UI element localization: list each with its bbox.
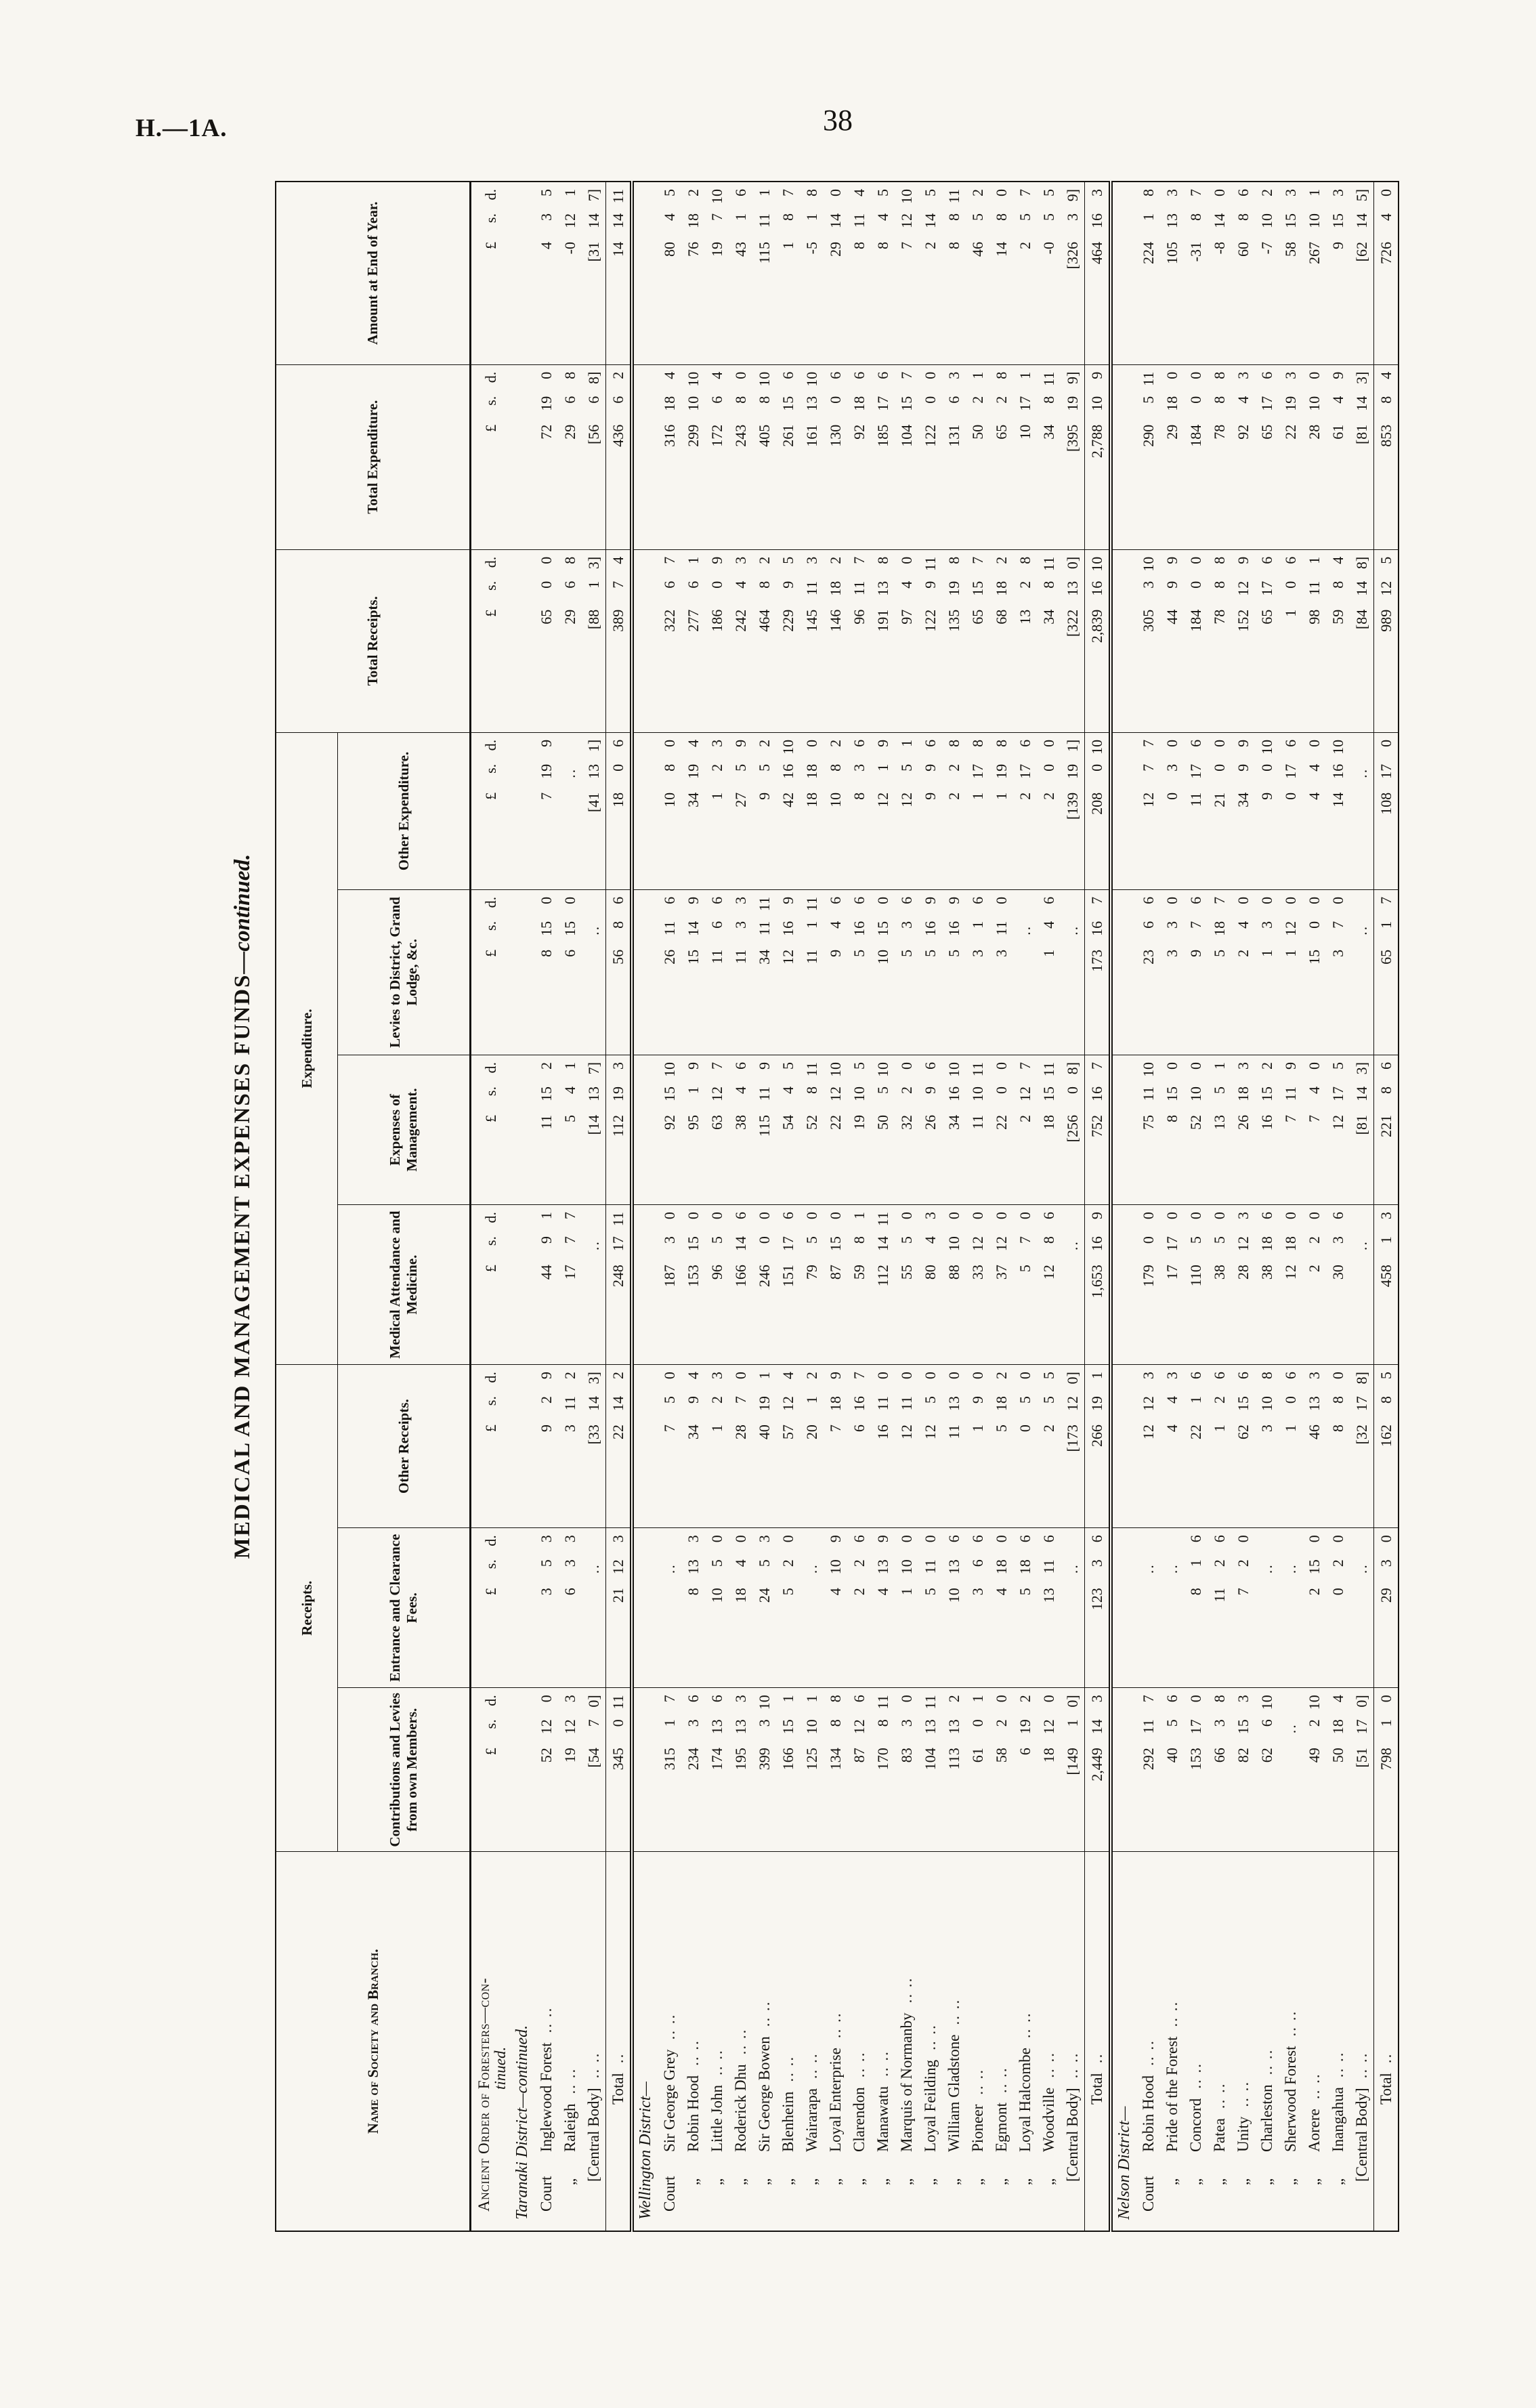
money-cell: 123 bbox=[705, 732, 729, 889]
money-cell: 57124 bbox=[776, 1365, 800, 1528]
empty-cell bbox=[1111, 182, 1136, 364]
money-cell: 12200 bbox=[918, 364, 942, 549]
money-cell: [25608] bbox=[1061, 1055, 1085, 1205]
money-cell: 19105 bbox=[847, 1055, 871, 1205]
branch-name-cell: Wellington District— bbox=[632, 1852, 658, 2231]
money-cell: £s.d. bbox=[471, 364, 511, 549]
money-cell: 10171 bbox=[1013, 364, 1037, 549]
money-cell: 1100 bbox=[895, 1528, 918, 1688]
money-cell: 9650 bbox=[705, 1205, 729, 1365]
money-cell: 72190 bbox=[534, 364, 558, 549]
branch-name-cell: „Pride of the Forest.. .. bbox=[1160, 1852, 1184, 2231]
money-cell: 104157 bbox=[895, 364, 918, 549]
money-cell: 2216 bbox=[1184, 1365, 1208, 1528]
money-cell: 19123 bbox=[558, 1688, 582, 1852]
empty-cell bbox=[632, 732, 658, 889]
money-cell: 1133 bbox=[729, 889, 752, 1055]
money-cell: 1840 bbox=[729, 1528, 752, 1688]
money-cell: 345011 bbox=[606, 1688, 633, 1852]
money-cell: 24600 bbox=[752, 1205, 776, 1365]
money-cell: [33143] bbox=[582, 1365, 606, 1528]
money-cell: 190 bbox=[966, 1365, 989, 1528]
table-row: „Loyal Feilding.. ..10413115110125080432… bbox=[918, 182, 942, 2231]
branch-name-cell: „William Gladstone.. .. bbox=[942, 1852, 966, 2231]
money-cell: 24380 bbox=[729, 364, 752, 549]
other-receipts-header: Other Receipts. bbox=[338, 1365, 471, 1528]
blank-value-cell: .. bbox=[1350, 732, 1374, 889]
money-cell: 9010 bbox=[1255, 732, 1279, 889]
table-row: „Raleigh.. ..19123633311217775416150..29… bbox=[558, 182, 582, 2231]
money-cell: 15149 bbox=[681, 889, 705, 1055]
money-cell: 020 bbox=[1326, 1528, 1350, 1688]
money-cell: [81143] bbox=[1350, 1055, 1374, 1205]
contributions-header: Contributions and Levies from own Member… bbox=[338, 1688, 471, 1852]
money-cell: 5445 bbox=[776, 1055, 800, 1205]
money-cell: 52120 bbox=[534, 1688, 558, 1852]
table-row: „Sherwood Forest.. ......106121807119112… bbox=[1279, 182, 1302, 2231]
money-cell: 13488 bbox=[824, 1688, 847, 1852]
money-cell: 82153 bbox=[1231, 1688, 1255, 1852]
table-title-main: MEDICAL AND MANAGEMENT EXPENSES FUNDS bbox=[230, 974, 255, 1559]
money-cell: 11130 bbox=[942, 1365, 966, 1528]
money-cell: 952 bbox=[752, 732, 776, 889]
empty-cell bbox=[1111, 1365, 1136, 1528]
money-cell: 8043 bbox=[918, 1205, 942, 1365]
money-cell: 9519 bbox=[681, 1055, 705, 1205]
total-row: Total..798102930162854581322186651710817… bbox=[1374, 182, 1399, 2231]
money-cell: 200 bbox=[1037, 732, 1061, 889]
money-cell: [41131] bbox=[582, 732, 606, 889]
money-cell: 5169 bbox=[942, 889, 966, 1055]
money-cell: 13006 bbox=[824, 364, 847, 549]
blank-value-cell: .. bbox=[800, 1528, 824, 1688]
money-cell: 38974 bbox=[606, 549, 633, 732]
branch-name-cell: [Central Body].. .. bbox=[1061, 1852, 1085, 2231]
money-cell: 46133 bbox=[1302, 1365, 1326, 1528]
total-receipts-header: Total Receipts. bbox=[276, 549, 471, 732]
money-cell: 1806 bbox=[606, 732, 633, 889]
money-cell: 1500 bbox=[1302, 889, 1326, 1055]
branch-name-cell: „Concord.. .. bbox=[1184, 1852, 1208, 2231]
money-cell: 32267 bbox=[658, 549, 681, 732]
table-row: CourtInglewood Forest.. ..52120353929449… bbox=[534, 182, 558, 2231]
money-cell: 720 bbox=[1231, 1528, 1255, 1688]
empty-cell bbox=[632, 182, 658, 364]
blank-value-cell: .. bbox=[1255, 1528, 1279, 1688]
money-cell: 3499 bbox=[1231, 732, 1255, 889]
money-cell: 135198 bbox=[942, 549, 966, 732]
money-cell: 2012 bbox=[800, 1365, 824, 1528]
blank-value-cell: .. bbox=[1061, 1205, 1085, 1365]
money-cell: 7888 bbox=[1208, 549, 1231, 732]
entrance-fees-header: Entrance and Clearance Fees. bbox=[338, 1528, 471, 1688]
empty-cell bbox=[511, 1688, 534, 1852]
money-cell: 929 bbox=[534, 1365, 558, 1528]
money-cell: [32639] bbox=[1061, 182, 1085, 364]
money-cell: 13163 bbox=[942, 364, 966, 549]
branch-name-cell: „Patea.. .. bbox=[1208, 1852, 1231, 2231]
money-cell: 12180 bbox=[1279, 1205, 1302, 1365]
money-cell: £s.d. bbox=[471, 1055, 511, 1205]
money-cell: 112193 bbox=[606, 1055, 633, 1205]
table-row: „Egmont.. ..5820418051823712022003110119… bbox=[989, 182, 1013, 2231]
money-cell: 24243 bbox=[729, 549, 752, 732]
money-cell: 12169 bbox=[776, 889, 800, 1055]
money-cell: 353 bbox=[534, 1528, 558, 1688]
blank-value-cell: .. bbox=[582, 1528, 606, 1688]
money-cell: 1080 bbox=[658, 732, 681, 889]
money-cell: 11152 bbox=[534, 1055, 558, 1205]
money-cell: 341610 bbox=[942, 1055, 966, 1205]
branch-name-cell: „Blenheim.. .. bbox=[776, 1852, 800, 2231]
table-row: CourtRobin Hood.. ..292117..121231790075… bbox=[1136, 182, 1160, 2231]
money-cell: 16152 bbox=[1255, 1055, 1279, 1205]
money-cell: 976 bbox=[1184, 889, 1208, 1055]
money-cell: 11050 bbox=[1184, 1205, 1208, 1365]
money-cell: 5820 bbox=[989, 1688, 1013, 1852]
money-cell: [395199] bbox=[1061, 364, 1085, 549]
money-cell: 8045 bbox=[658, 182, 681, 364]
money-cell: 10136 bbox=[942, 1528, 966, 1688]
money-cell: [31147] bbox=[582, 182, 606, 364]
money-cell: 17264 bbox=[705, 364, 729, 549]
money-cell: -7102 bbox=[1255, 182, 1279, 364]
money-cell: -055 bbox=[1037, 182, 1061, 364]
money-cell: 880 bbox=[1326, 1365, 1350, 1528]
empty-cell bbox=[511, 182, 534, 364]
table-row: „Patea.. ..66381126126385013515187210078… bbox=[1208, 182, 1231, 2231]
money-cell: [173120] bbox=[1061, 1365, 1085, 1528]
branch-name-cell: Total.. bbox=[1374, 1852, 1399, 2231]
money-cell: 3108 bbox=[1255, 1365, 1279, 1528]
medical-attendance-header: Medical Attendance and Medicine. bbox=[338, 1205, 471, 1365]
money-cell: 3850 bbox=[1208, 1205, 1231, 1365]
rotated-table-container: MEDICAL AND MANAGEMENT EXPENSES FUNDS—co… bbox=[230, 181, 1395, 2232]
table-row: „Sir George Bowen.. ..399310245340191246… bbox=[752, 182, 776, 2231]
expenditure-group-header: Expenditure. bbox=[276, 732, 338, 1364]
money-cell: 16285 bbox=[1374, 1365, 1399, 1528]
money-cell: 5686 bbox=[606, 889, 633, 1055]
empty-cell bbox=[632, 364, 658, 549]
money-cell: 2,788109 bbox=[1085, 364, 1111, 549]
money-cell: 8150 bbox=[1160, 1055, 1184, 1205]
table-row: [Central Body].. ..[14910]..[173120]..[2… bbox=[1061, 182, 1085, 2231]
money-cell: [14910] bbox=[1061, 1688, 1085, 1852]
money-cell: 443 bbox=[1160, 1365, 1184, 1528]
money-cell: 3036 bbox=[1326, 1205, 1350, 1365]
money-cell: 185176 bbox=[871, 364, 895, 549]
branch-name-cell: „Woodville.. .. bbox=[1037, 1852, 1061, 2231]
table-row: „Charleston.. ..62610..31083818616152130… bbox=[1255, 182, 1279, 2231]
branch-name-cell: „Inangahua.. .. bbox=[1326, 1852, 1350, 2231]
money-cell: 18120 bbox=[1037, 1688, 1061, 1852]
money-cell: 11111 bbox=[800, 889, 824, 1055]
money-cell: [62145] bbox=[1350, 182, 1374, 364]
table-row: „Loyal Halcombe.. ..619251860505702127..… bbox=[1013, 182, 1037, 2231]
money-cell: 4139 bbox=[871, 1528, 895, 1688]
money-cell: 8114 bbox=[847, 182, 871, 364]
management-expenses-header: Expenses of Management. bbox=[338, 1055, 471, 1205]
funds-table: Name of Society and Branch. Receipts. Ex… bbox=[275, 181, 1399, 2232]
money-cell: 152129 bbox=[1231, 549, 1255, 732]
receipts-group-header: Receipts. bbox=[276, 1365, 338, 1852]
branch-name-cell: CourtSir George Grey.. .. bbox=[658, 1852, 681, 2231]
money-cell: 10150 bbox=[871, 889, 895, 1055]
empty-cell bbox=[1111, 1528, 1136, 1688]
money-cell: 153170 bbox=[1184, 1688, 1208, 1852]
money-cell: 946 bbox=[824, 889, 847, 1055]
money-cell: 2930 bbox=[1374, 1528, 1399, 1688]
money-cell: 98111 bbox=[1302, 549, 1326, 732]
money-cell: [32178] bbox=[1350, 1365, 1374, 1528]
money-cell: 29180 bbox=[1160, 364, 1184, 549]
money-cell: 34811 bbox=[1037, 549, 1061, 732]
branch-name-cell: Total.. bbox=[606, 1852, 633, 2231]
empty-cell bbox=[632, 1055, 658, 1205]
branch-name-cell: „Wairarapa.. .. bbox=[800, 1852, 824, 2231]
money-cell: 6149 bbox=[1326, 364, 1350, 549]
blank-value-cell: .. bbox=[1013, 889, 1037, 1055]
money-cell: £s.d. bbox=[471, 732, 511, 889]
money-cell: 5550 bbox=[895, 1205, 918, 1365]
money-cell: 26116 bbox=[658, 889, 681, 1055]
money-cell: 130 bbox=[1255, 889, 1279, 1055]
money-cell: 836 bbox=[847, 732, 871, 889]
table-row: „Clarendon.. ..8712622661675981191055166… bbox=[847, 182, 871, 2231]
money-cell: 440 bbox=[1302, 732, 1326, 889]
money-cell: £s.d. bbox=[471, 1365, 511, 1528]
money-cell: 366 bbox=[966, 1528, 989, 1688]
money-cell: 6086 bbox=[1231, 182, 1255, 364]
money-cell: 12123 bbox=[1136, 1365, 1160, 1528]
money-cell: 221210 bbox=[824, 1055, 847, 1205]
money-cell: 115111 bbox=[752, 182, 776, 364]
money-cell: [139191] bbox=[1061, 732, 1085, 889]
money-cell: 633 bbox=[558, 1528, 582, 1688]
money-cell: 33120 bbox=[966, 1205, 989, 1365]
money-cell: 6192 bbox=[1013, 1688, 1037, 1852]
table-row: „Wairarapa.. ..125101..20127950528111111… bbox=[800, 182, 824, 2231]
money-cell: 13116 bbox=[1037, 1528, 1061, 1688]
money-cell: 5021 bbox=[966, 364, 989, 549]
money-cell: 6167 bbox=[847, 1365, 871, 1528]
table-row: „Loyal Enterprise.. ..134884109718987150… bbox=[824, 182, 847, 2231]
money-cell: 208010 bbox=[1085, 732, 1111, 889]
money-cell: 1198 bbox=[989, 732, 1013, 889]
money-cell: 187 bbox=[776, 182, 800, 364]
money-cell: 2481711 bbox=[606, 1205, 633, 1365]
money-cell: 88100 bbox=[942, 1205, 966, 1365]
empty-cell bbox=[632, 1688, 658, 1852]
money-cell: 34194 bbox=[681, 732, 705, 889]
money-cell: [322130] bbox=[1061, 549, 1085, 732]
table-row: „Concord.. ..153170816221611050521009761… bbox=[1184, 182, 1208, 2231]
money-cell: 3494 bbox=[681, 1365, 705, 1528]
page-number: 38 bbox=[823, 103, 853, 138]
money-cell: 536 bbox=[895, 889, 918, 1055]
money-cell: 316 bbox=[966, 889, 989, 1055]
money-cell: 151176 bbox=[776, 1205, 800, 1365]
money-cell: 2150 bbox=[1302, 1528, 1326, 1688]
money-cell: 257 bbox=[1013, 182, 1037, 364]
money-cell: 37120 bbox=[989, 1205, 1013, 1365]
money-cell: £s.d. bbox=[471, 549, 511, 732]
money-cell: 8330 bbox=[895, 1688, 918, 1852]
money-cell: 845 bbox=[871, 182, 895, 364]
money-cell: 4180 bbox=[989, 1528, 1013, 1688]
money-cell: 174136 bbox=[705, 1688, 729, 1852]
branch-name-cell: Total.. bbox=[1085, 1852, 1111, 2231]
money-cell: 750 bbox=[658, 1365, 681, 1528]
branch-name-cell: „Roderick Dhu.. .. bbox=[729, 1852, 752, 2231]
blank-value-cell: .. bbox=[1279, 1688, 1302, 1852]
money-cell: 181511 bbox=[1037, 1055, 1061, 1205]
money-cell: 399310 bbox=[752, 1688, 776, 1852]
money-cell: 1166 bbox=[705, 889, 729, 1055]
money-cell: 1126 bbox=[1208, 1528, 1231, 1688]
money-cell: 4316 bbox=[729, 182, 752, 364]
money-cell: 520 bbox=[776, 1528, 800, 1688]
blank-value-cell: .. bbox=[582, 889, 606, 1055]
money-cell: 3220 bbox=[895, 1055, 918, 1205]
name-column-header: Name of Society and Branch. bbox=[276, 1852, 471, 2231]
money-cell: 29140 bbox=[824, 182, 847, 364]
money-cell: 3112 bbox=[558, 1365, 582, 1528]
table-row: „Blenheim.. ..16615152057124151176544512… bbox=[776, 182, 800, 2231]
branch-name-cell: „Little John.. .. bbox=[705, 1852, 729, 2231]
table-row: „Manawatu.. ..17081141391611011214115051… bbox=[871, 182, 895, 2231]
money-cell: 1250 bbox=[918, 1365, 942, 1528]
money-cell: 16110 bbox=[871, 1365, 895, 1528]
branch-name-cell: „Unity.. .. bbox=[1231, 1852, 1255, 2231]
money-cell: 1050 bbox=[705, 1528, 729, 1688]
empty-cell bbox=[511, 732, 534, 889]
money-cell: 46482 bbox=[752, 549, 776, 732]
money-cell: 1178 bbox=[966, 732, 989, 889]
money-cell: 751110 bbox=[1136, 1055, 1160, 1205]
money-cell: 122911 bbox=[918, 549, 942, 732]
money-cell: £s.d. bbox=[471, 1528, 511, 1688]
money-cell: 7189 bbox=[824, 1365, 847, 1528]
money-cell: 1777 bbox=[558, 1205, 582, 1365]
money-cell: 2127 bbox=[1013, 1055, 1037, 1205]
table-row: „Little John.. ..17413610501239650631271… bbox=[705, 182, 729, 2231]
money-cell: 5187 bbox=[1208, 889, 1231, 1055]
money-cell: 341111 bbox=[752, 889, 776, 1055]
money-cell: 030 bbox=[1160, 732, 1184, 889]
table-row: „William Gladstone.. ..11313210136111308… bbox=[942, 182, 966, 2231]
money-cell: £s.d. bbox=[471, 1205, 511, 1365]
money-cell: 2696 bbox=[918, 1055, 942, 1205]
money-cell: 240 bbox=[1231, 889, 1255, 1055]
money-cell: -518 bbox=[800, 182, 824, 364]
money-cell: 2759 bbox=[729, 732, 752, 889]
money-cell: 26183 bbox=[1231, 1055, 1255, 1205]
money-cell: 2,449143 bbox=[1085, 1688, 1111, 1852]
branch-name-cell: „Loyal Halcombe.. .. bbox=[1013, 1852, 1037, 2231]
money-cell: [8813] bbox=[582, 549, 606, 732]
money-cell: [84148] bbox=[1350, 549, 1374, 732]
district-heading-row: Nelson District— bbox=[1111, 182, 1136, 2231]
money-cell: 1328 bbox=[1013, 549, 1037, 732]
table-row: [Central Body].. ..[51170]..[32178]..[81… bbox=[1350, 182, 1374, 2231]
empty-cell bbox=[632, 549, 658, 732]
blank-value-cell: .. bbox=[1350, 889, 1374, 1055]
money-cell: 40191 bbox=[752, 1365, 776, 1528]
money-cell: 740 bbox=[1302, 1055, 1326, 1205]
blank-value-cell: .. bbox=[658, 1528, 681, 1688]
money-cell: 316184 bbox=[658, 364, 681, 549]
levies-header: Levies to District, Grand Lodge, &c. bbox=[338, 889, 471, 1055]
money-cell: 330 bbox=[1160, 889, 1184, 1055]
money-cell: 28100 bbox=[1302, 364, 1326, 549]
money-cell: 68182 bbox=[989, 549, 1013, 732]
table-header: Name of Society and Branch. Receipts. Ex… bbox=[276, 182, 471, 2231]
money-cell: 7199 bbox=[534, 732, 558, 889]
money-cell: 7950 bbox=[800, 1205, 824, 1365]
table-row: „Pioneer.. ..610136619033120111011316117… bbox=[966, 182, 989, 2231]
money-cell: 5169 bbox=[918, 889, 942, 1055]
branch-name-cell: „Charleston.. .. bbox=[1255, 1852, 1279, 2231]
money-cell: 464163 bbox=[1085, 182, 1111, 364]
money-cell: 170811 bbox=[871, 1688, 895, 1852]
money-cell: 266191 bbox=[1085, 1365, 1111, 1528]
money-cell: [51170] bbox=[1350, 1688, 1374, 1852]
money-cell: 45813 bbox=[1374, 1205, 1399, 1365]
table-title-suffix: —continued. bbox=[230, 854, 255, 974]
branch-name-cell: [Central Body].. .. bbox=[1350, 1852, 1374, 2231]
money-cell: 261156 bbox=[776, 364, 800, 549]
table-row: „Unity.. ..82153720621562812326183240349… bbox=[1231, 182, 1255, 2231]
money-cell: 5110 bbox=[918, 1528, 942, 1688]
money-cell: 228 bbox=[942, 732, 966, 889]
money-cell: 1219 bbox=[871, 732, 895, 889]
money-cell: 370 bbox=[1326, 889, 1350, 1055]
money-cell: 18180 bbox=[800, 732, 824, 889]
money-cell: 22186 bbox=[1374, 1055, 1399, 1205]
empty-cell bbox=[511, 364, 534, 549]
money-cell: 2145 bbox=[918, 182, 942, 364]
money-cell: 18400 bbox=[1184, 364, 1208, 549]
branch-name-cell: „Loyal Enterprise.. .. bbox=[824, 1852, 847, 2231]
money-cell: 141411 bbox=[606, 182, 633, 364]
money-cell: 72640 bbox=[1374, 182, 1399, 364]
empty-cell bbox=[511, 1055, 534, 1205]
money-cell: 2176 bbox=[1013, 732, 1037, 889]
empty-cell bbox=[511, 1528, 534, 1688]
table-row: „Roderick Dhu.. ..1951331840287016614638… bbox=[729, 182, 752, 2231]
money-cell: 3846 bbox=[729, 1055, 752, 1205]
money-cell: 76182 bbox=[681, 182, 705, 364]
branch-name-cell: „Marquis of Normanby.. .. bbox=[895, 1852, 918, 2231]
money-cell: [5470] bbox=[582, 1688, 606, 1852]
money-cell: -3187 bbox=[1184, 182, 1208, 364]
money-cell: 79810 bbox=[1374, 1688, 1399, 1852]
money-cell: 541 bbox=[558, 1055, 582, 1205]
money-cell: 421610 bbox=[776, 732, 800, 889]
money-cell: 146182 bbox=[824, 549, 847, 732]
money-cell: 4491 bbox=[534, 1205, 558, 1365]
money-cell: 1041311 bbox=[918, 1688, 942, 1852]
empty-cell bbox=[1111, 732, 1136, 889]
money-cell: 6101 bbox=[966, 1688, 989, 1852]
money-cell: 21123 bbox=[606, 1528, 633, 1688]
money-cell: 5182 bbox=[989, 1365, 1013, 1528]
money-cell: 1611310 bbox=[800, 364, 824, 549]
other-expenditure-header: Other Expenditure. bbox=[338, 732, 471, 889]
money-cell: 1286 bbox=[1037, 1205, 1061, 1365]
money-cell: 405810 bbox=[752, 364, 776, 549]
